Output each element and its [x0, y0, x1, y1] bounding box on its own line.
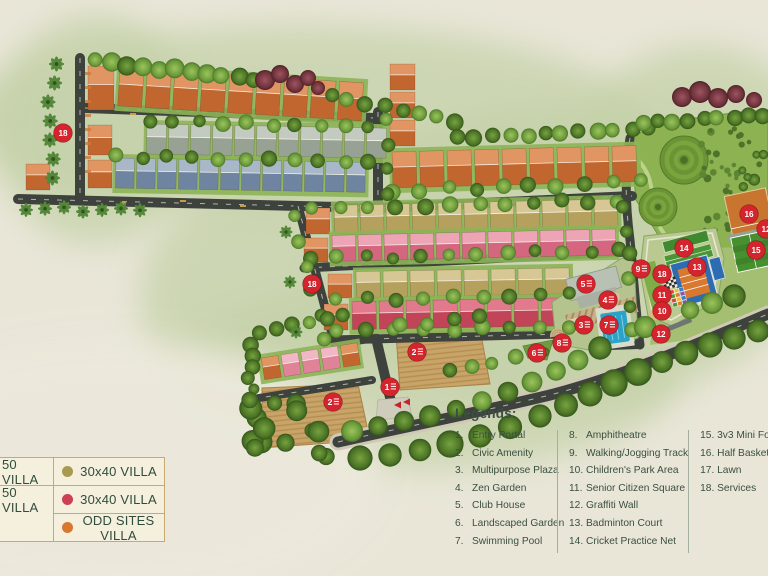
- legend-column-3: 15.3v3 Mini Football16.Half Basketball17…: [688, 430, 768, 553]
- legend-item-label: Swimming Pool: [472, 536, 542, 547]
- palm-tree: [76, 205, 90, 219]
- svg-text:12: 12: [761, 225, 768, 234]
- legend-item-number: 2.: [455, 448, 470, 459]
- legend-item-number: 17.: [700, 465, 715, 476]
- svg-text:16: 16: [744, 210, 754, 219]
- svg-text:4: 4: [603, 295, 608, 305]
- legend-item: 1.Entry Portal: [455, 430, 557, 441]
- map-marker-5: 5: [577, 275, 596, 294]
- villa-type-label: 30x40 VILLA: [73, 492, 164, 507]
- villa-type-color-dot: [62, 522, 73, 533]
- villa-house: [168, 124, 188, 154]
- map-marker-3: 3: [575, 316, 594, 335]
- legend-column-2: 8.Amphitheatre9.Walking/Jogging Track10.…: [557, 430, 688, 553]
- legend-item: 12.Graffiti Wall: [569, 500, 688, 511]
- villa-house: [178, 159, 197, 189]
- map-marker-18: 18: [653, 265, 672, 284]
- svg-text:8: 8: [557, 338, 562, 348]
- svg-text:18: 18: [307, 280, 317, 289]
- villa-type-row: 50 VILLA: [0, 486, 53, 513]
- legend-item-number: 16.: [700, 448, 715, 459]
- legend-item: 11.Senior Citizen Square: [569, 483, 688, 494]
- svg-text:2: 2: [412, 347, 417, 357]
- palm-tree: [47, 76, 62, 91]
- svg-text:18: 18: [58, 129, 68, 138]
- svg-text:7: 7: [604, 320, 609, 330]
- villa-legend-right-column: 30x40 VILLA30x40 VILLAODD SITES VILLA: [53, 457, 165, 542]
- villa-type-label: ODD SITES VILLA: [73, 513, 164, 543]
- legend-item-label: Badminton Court: [586, 518, 662, 529]
- legend-item-number: 6.: [455, 518, 470, 529]
- legend-item-number: 13.: [569, 518, 584, 529]
- legend-item-number: 4.: [455, 483, 470, 494]
- villa-type-row: 50 VILLA: [0, 458, 53, 486]
- map-marker-15: 15: [747, 241, 766, 260]
- palm-tree: [45, 171, 60, 186]
- legend-item: 13.Badminton Court: [569, 518, 688, 529]
- palm-tree: [40, 95, 55, 110]
- map-marker-18: 18: [303, 275, 322, 294]
- svg-text:9: 9: [636, 264, 641, 274]
- villa-house: [474, 149, 499, 186]
- villa-row: [389, 141, 642, 193]
- villa-type-color-dot: [62, 466, 73, 477]
- svg-text:13: 13: [692, 263, 702, 272]
- svg-text:15: 15: [751, 246, 761, 255]
- map-marker-7: 7: [600, 316, 619, 335]
- villa-house: [320, 346, 340, 370]
- svg-text:12: 12: [656, 330, 666, 339]
- legend-item-number: 11.: [569, 483, 584, 494]
- legend-columns: 1.Entry Portal2.Civic Amenity3.Multipurp…: [452, 430, 768, 553]
- map-marker-14: 14: [675, 239, 694, 258]
- map-marker-6: 6: [528, 344, 547, 363]
- legend-item: 5.Club House: [455, 500, 557, 511]
- legend-item: 18.Services: [700, 483, 768, 494]
- legend-item-number: 3.: [455, 465, 470, 476]
- legend-item-number: 18.: [700, 483, 715, 494]
- legend-item: 9.Walking/Jogging Track: [569, 448, 688, 459]
- villa-type-legend: 50 VILLA50 VILLA 30x40 VILLA30x40 VILLAO…: [0, 457, 165, 542]
- svg-text:10: 10: [657, 307, 667, 316]
- site-plan: 18 18 2 1 2 6 8 3 7: [0, 0, 768, 576]
- villa-house: [88, 125, 112, 155]
- villa-type-label: 30x40 VILLA: [73, 464, 164, 479]
- villa-house: [340, 343, 360, 367]
- legend-item-label: Services: [717, 483, 756, 494]
- villa-house: [88, 160, 112, 188]
- villa-type-label: 50 VILLA: [2, 457, 53, 487]
- legend-item-label: Children's Park Area: [586, 465, 679, 476]
- villa-type-row: ODD SITES VILLA: [54, 514, 164, 541]
- legend-item: 3.Multipurpose Plaza: [455, 465, 557, 476]
- map-marker-10: 10: [653, 302, 672, 321]
- legend-item-label: Club House: [472, 500, 525, 511]
- legend-item-label: Senior Citizen Square: [586, 483, 685, 494]
- legend-item-label: Half Basketball: [717, 448, 768, 459]
- svg-text:3: 3: [579, 320, 584, 330]
- villa-house: [390, 64, 415, 90]
- legend-item-number: 10.: [569, 465, 584, 476]
- villa-house: [301, 349, 321, 373]
- legend-item-label: Cricket Practice Net: [586, 536, 676, 547]
- villa-house: [157, 159, 176, 189]
- legend-item-label: Zen Garden: [472, 483, 526, 494]
- palm-tree: [133, 203, 147, 217]
- map-marker-8: 8: [553, 334, 572, 353]
- legend-item: 17.Lawn: [700, 465, 768, 476]
- legend-item: 15.3v3 Mini Football: [700, 430, 768, 441]
- svg-text:18: 18: [657, 270, 667, 279]
- svg-text:14: 14: [679, 244, 689, 253]
- villa-house: [392, 151, 417, 188]
- legend-item-label: Multipurpose Plaza: [472, 465, 559, 476]
- map-marker-16: 16: [740, 205, 759, 224]
- legend-item-number: 9.: [569, 448, 584, 459]
- villa-house: [419, 151, 444, 188]
- svg-text:5: 5: [581, 279, 586, 289]
- legend-item: 2.Civic Amenity: [455, 448, 557, 459]
- villa-house: [261, 355, 281, 379]
- legend-item: 10.Children's Park Area: [569, 465, 688, 476]
- palm-tree: [95, 203, 109, 217]
- villa-type-row: 30x40 VILLA: [54, 486, 164, 514]
- palm-tree: [49, 57, 64, 72]
- villa-house: [190, 125, 210, 155]
- svg-text:11: 11: [658, 291, 667, 300]
- villa-house: [234, 126, 254, 156]
- legend-item-number: 5.: [455, 500, 470, 511]
- legend-item-label: Entry Portal: [472, 430, 525, 441]
- legend-item-number: 14.: [569, 536, 584, 547]
- palm-tree: [57, 200, 71, 214]
- map-marker-2: 2: [324, 393, 343, 412]
- legend-item: 8.Amphitheatre: [569, 430, 688, 441]
- legend-item-label: Lawn: [717, 465, 741, 476]
- villa-house: [322, 127, 342, 157]
- legend-item-number: 1.: [455, 430, 470, 441]
- villa-house: [115, 158, 134, 188]
- legend-item-number: 7.: [455, 536, 470, 547]
- legend-item-label: Walking/Jogging Track: [586, 448, 688, 459]
- legend-item-number: 8.: [569, 430, 584, 441]
- palm-tree: [38, 202, 52, 216]
- palm-tree: [114, 201, 128, 215]
- legend-item: 7.Swimming Pool: [455, 536, 557, 547]
- villa-house: [281, 352, 301, 376]
- palm-tree: [290, 326, 303, 339]
- svg-text:2: 2: [328, 397, 333, 407]
- legend-item-label: Landscaped Garden: [472, 518, 564, 529]
- villa-type-label: 50 VILLA: [2, 485, 53, 515]
- villa-house: [557, 147, 582, 184]
- legend-item: 14.Cricket Practice Net: [569, 536, 688, 547]
- legend-item-label: Civic Amenity: [472, 448, 533, 459]
- amenities-legend: Legends: 1.Entry Portal2.Civic Amenity3.…: [452, 406, 768, 553]
- map-marker-13: 13: [688, 258, 707, 277]
- map-marker-2: 2: [408, 343, 427, 362]
- legend-item-number: 15.: [700, 430, 715, 441]
- palm-tree: [280, 226, 293, 239]
- legend-item-label: 3v3 Mini Football: [717, 430, 768, 441]
- palm-tree: [284, 276, 297, 289]
- map-marker-12: 12: [652, 325, 671, 344]
- palm-tree: [46, 152, 61, 167]
- villa-house: [300, 127, 320, 157]
- palm-tree: [43, 114, 58, 129]
- legend-item-number: 12.: [569, 500, 584, 511]
- villa-type-color-dot: [62, 494, 73, 505]
- map-marker-18: 18: [54, 124, 73, 143]
- villa-legend-left-column: 50 VILLA50 VILLA: [0, 457, 54, 542]
- palm-tree: [19, 203, 33, 217]
- legend-item: 16.Half Basketball: [700, 448, 768, 459]
- legend-heading: Legends:: [452, 406, 768, 421]
- legend-item-label: Amphitheatre: [586, 430, 647, 441]
- legend-column-1: 1.Entry Portal2.Civic Amenity3.Multipurp…: [452, 430, 557, 553]
- svg-text:6: 6: [532, 348, 537, 358]
- map-marker-9: 9: [632, 260, 651, 279]
- map-marker-4: 4: [599, 291, 618, 310]
- villa-house: [88, 66, 114, 110]
- map-marker-1: 1: [381, 378, 400, 397]
- legend-item: 6.Landscaped Garden: [455, 518, 557, 529]
- villa-type-row: 30x40 VILLA: [54, 458, 164, 486]
- legend-item: 4.Zen Garden: [455, 483, 557, 494]
- villa-house: [514, 298, 538, 326]
- svg-text:1: 1: [385, 382, 390, 392]
- legend-item-label: Graffiti Wall: [586, 500, 638, 511]
